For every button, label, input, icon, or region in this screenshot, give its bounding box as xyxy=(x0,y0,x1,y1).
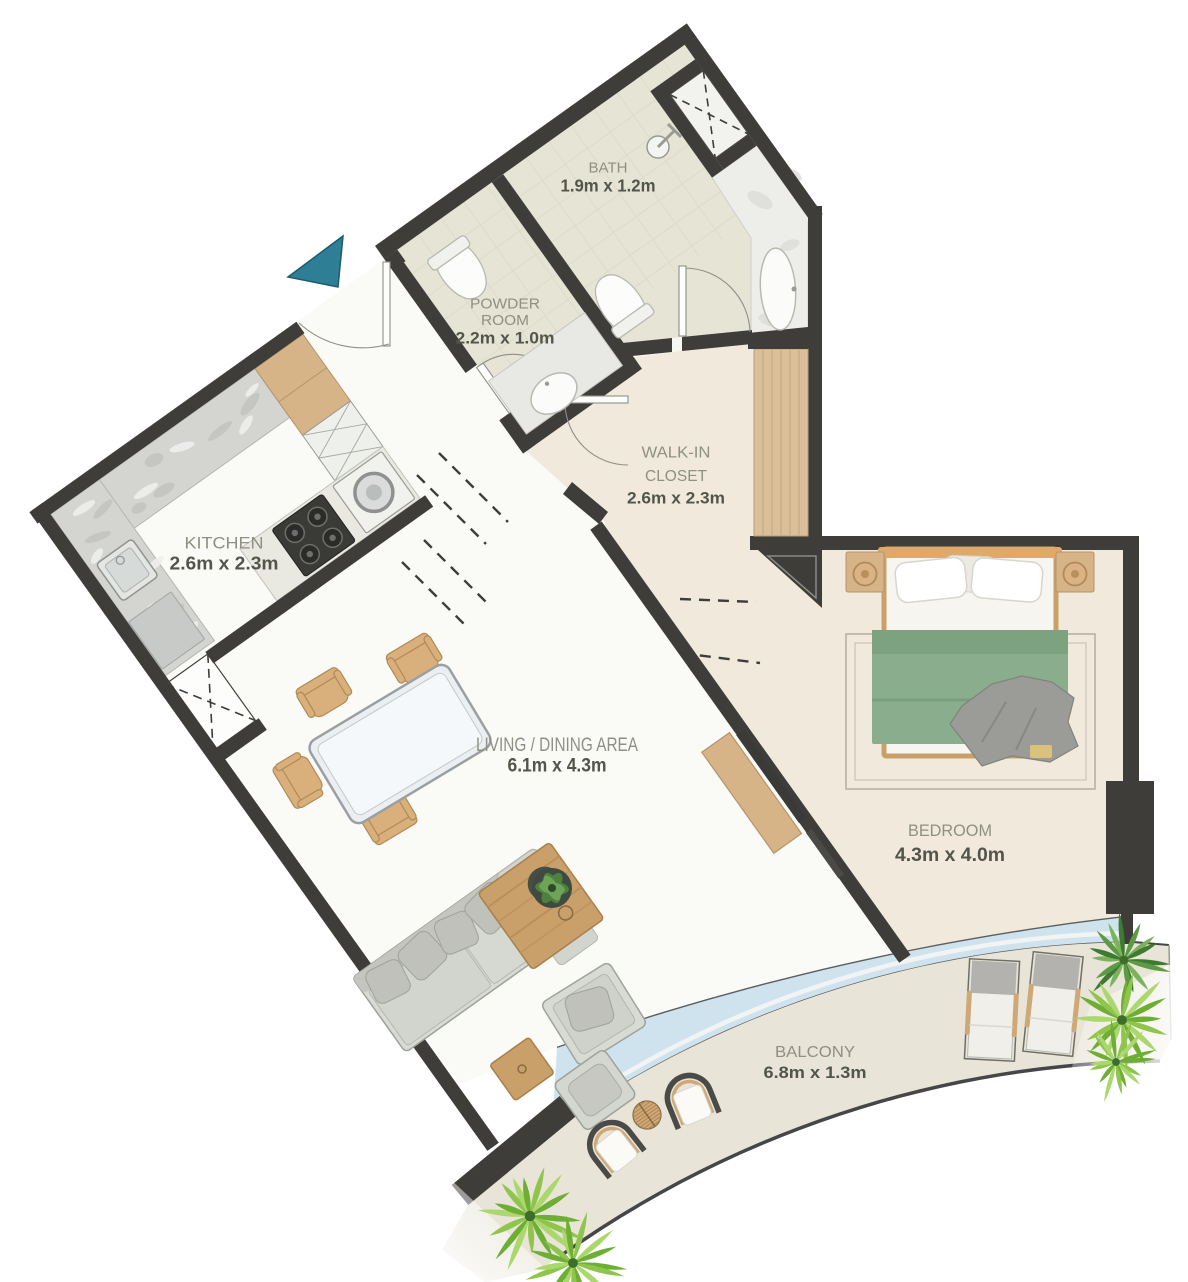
svg-text:2.6m x 2.3m: 2.6m x 2.3m xyxy=(627,490,725,508)
svg-text:KITCHEN: KITCHEN xyxy=(185,535,264,553)
svg-text:2.6m x 2.3m: 2.6m x 2.3m xyxy=(170,554,279,574)
svg-text:BALCONY: BALCONY xyxy=(775,1044,855,1061)
svg-text:6.8m x 1.3m: 6.8m x 1.3m xyxy=(764,1063,867,1082)
svg-text:4.3m x 4.0m: 4.3m x 4.0m xyxy=(895,844,1005,866)
svg-text:CLOSET: CLOSET xyxy=(645,468,708,485)
svg-text:1.9m x 1.2m: 1.9m x 1.2m xyxy=(561,176,656,196)
svg-text:2.2m x 1.0m: 2.2m x 1.0m xyxy=(456,330,555,348)
svg-text:POWDER: POWDER xyxy=(470,296,540,313)
svg-text:LIVING / DINING AREA: LIVING / DINING AREA xyxy=(476,735,638,756)
svg-text:WALK-IN: WALK-IN xyxy=(642,445,711,462)
svg-text:BATH: BATH xyxy=(589,160,628,177)
svg-text:BEDROOM: BEDROOM xyxy=(908,821,992,840)
svg-text:ROOM: ROOM xyxy=(481,312,529,329)
svg-text:6.1m x 4.3m: 6.1m x 4.3m xyxy=(508,756,607,777)
